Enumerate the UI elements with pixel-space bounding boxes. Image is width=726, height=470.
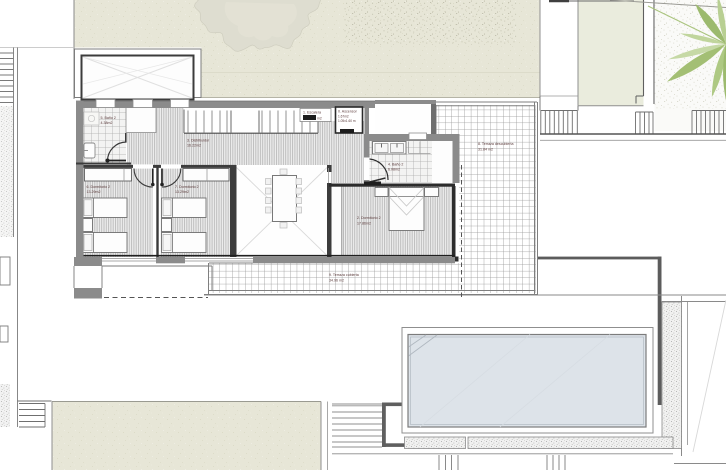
- svg-text:m2: m2: [317, 117, 322, 121]
- svg-text:31.84 m2: 31.84 m2: [478, 148, 493, 152]
- svg-text:8. Terraza descubierta: 8. Terraza descubierta: [478, 142, 514, 146]
- svg-text:6.08m2: 6.08m2: [388, 168, 400, 172]
- svg-text:1.67m2: 1.67m2: [338, 115, 349, 119]
- svg-text:0. Ascensor: 0. Ascensor: [338, 110, 358, 114]
- svg-text:1.05x1.60 m: 1.05x1.60 m: [338, 119, 356, 123]
- svg-text:4.38m2: 4.38m2: [101, 121, 113, 125]
- svg-text:4. Baño 2: 4. Baño 2: [388, 163, 403, 167]
- svg-text:9. Terraza cubierta: 9. Terraza cubierta: [329, 273, 359, 277]
- svg-text:3. Distribuidor: 3. Distribuidor: [187, 139, 210, 143]
- svg-text:1. Escalera: 1. Escalera: [303, 111, 321, 115]
- svg-text:2. Dormitorio 2: 2. Dormitorio 2: [357, 216, 381, 220]
- svg-text:17.86m2: 17.86m2: [357, 222, 371, 226]
- svg-text:5. Baño 2: 5. Baño 2: [101, 116, 116, 120]
- svg-text:7. Dormitorio 2: 7. Dormitorio 2: [175, 185, 199, 189]
- svg-text:16.22m2: 16.22m2: [187, 144, 201, 148]
- svg-text:6. Dormitorio 2: 6. Dormitorio 2: [87, 185, 111, 189]
- svg-text:34.96 m2: 34.96 m2: [329, 279, 344, 283]
- svg-text:13.29m2: 13.29m2: [87, 190, 101, 194]
- svg-text:13.29m2: 13.29m2: [175, 190, 189, 194]
